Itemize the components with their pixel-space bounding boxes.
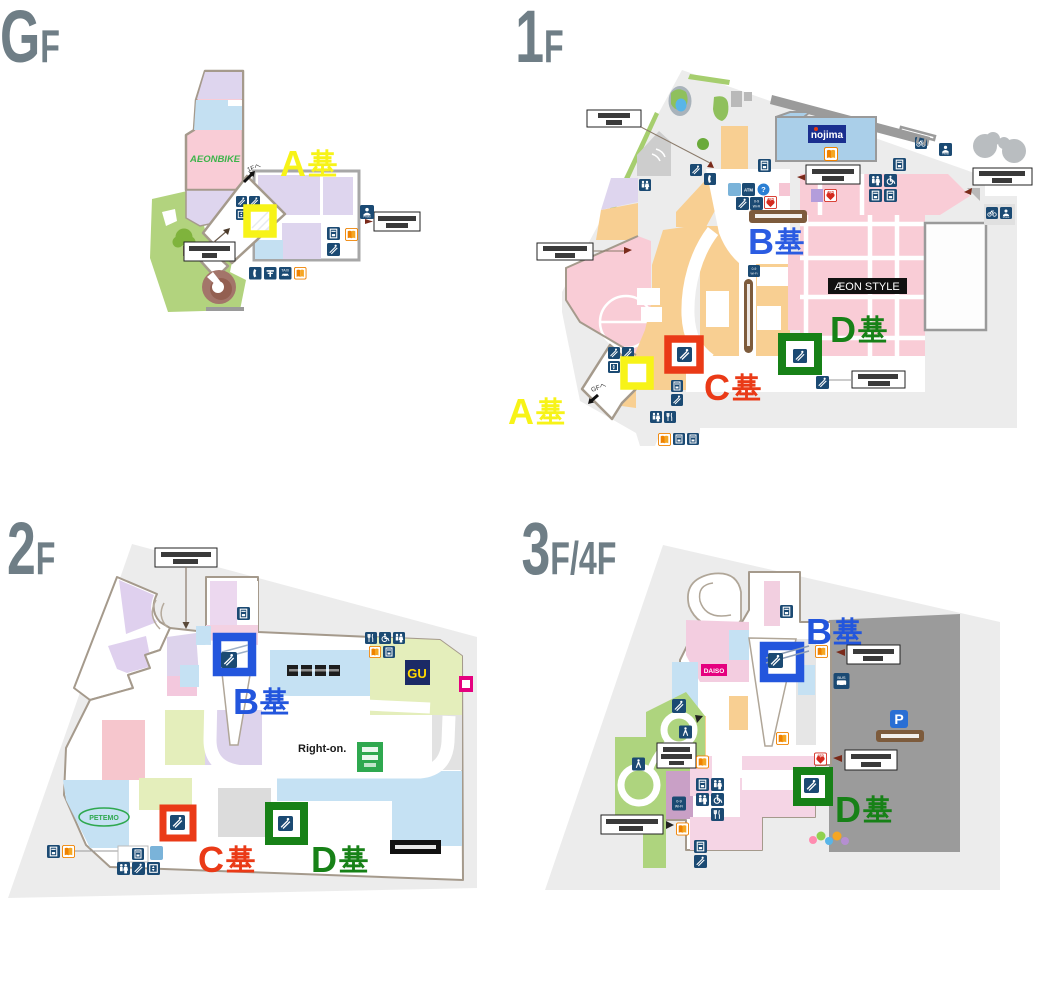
svg-text:ÆON STYLE: ÆON STYLE bbox=[834, 281, 899, 293]
svg-text:A: A bbox=[280, 143, 306, 184]
svg-text:B: B bbox=[233, 681, 259, 722]
svg-text:nojima: nojima bbox=[811, 130, 844, 141]
svg-text:AEONBIKE: AEONBIKE bbox=[189, 154, 241, 165]
svg-text:DAISO: DAISO bbox=[704, 668, 725, 675]
svg-text:D: D bbox=[311, 839, 337, 880]
svg-text:GU: GU bbox=[407, 666, 427, 681]
svg-text:Right-on.: Right-on. bbox=[298, 743, 346, 755]
svg-text:D: D bbox=[830, 309, 856, 350]
svg-text:PETEMO: PETEMO bbox=[89, 815, 119, 822]
svg-text:B: B bbox=[748, 221, 774, 262]
svg-text:A: A bbox=[508, 391, 534, 432]
svg-text:C: C bbox=[198, 839, 224, 880]
svg-text:D: D bbox=[835, 789, 861, 830]
svg-text:P: P bbox=[894, 711, 903, 727]
svg-text:C: C bbox=[704, 367, 730, 408]
